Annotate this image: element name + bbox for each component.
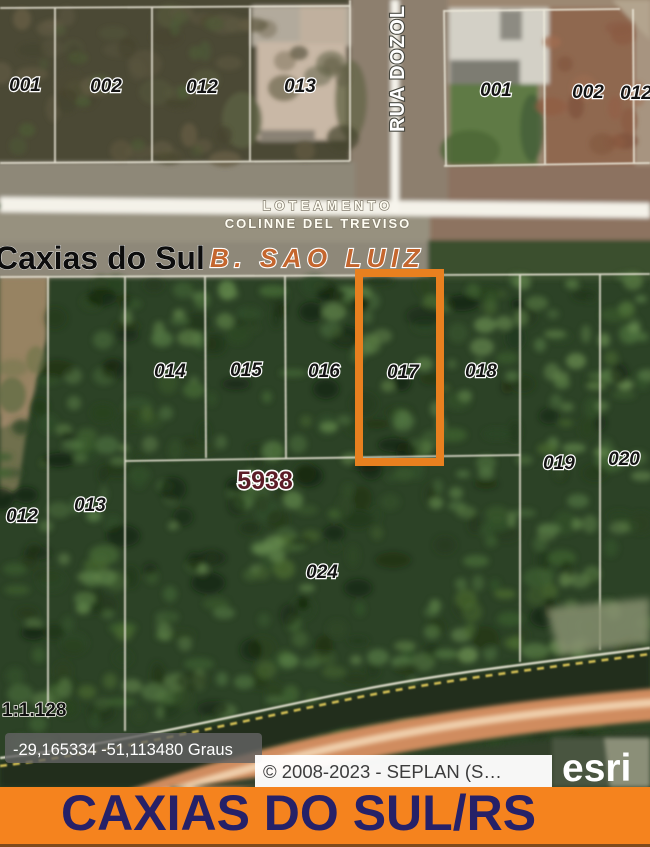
svg-text:esri: esri <box>562 747 631 787</box>
svg-text:013: 013 <box>74 495 106 516</box>
svg-text:012: 012 <box>6 506 38 527</box>
svg-text:013: 013 <box>284 76 316 97</box>
svg-text:5938: 5938 <box>237 467 293 495</box>
svg-text:001: 001 <box>9 75 41 96</box>
svg-text:020: 020 <box>608 449 640 470</box>
svg-text:LOTEAMENTO: LOTEAMENTO <box>263 198 394 213</box>
svg-text:002: 002 <box>572 82 604 103</box>
svg-text:016: 016 <box>308 361 340 382</box>
svg-text:015: 015 <box>230 360 262 381</box>
svg-text:Caxias do Sul: Caxias do Sul <box>0 240 205 276</box>
svg-text:012: 012 <box>620 83 650 104</box>
svg-text:RUA DOZOL: RUA DOZOL <box>387 5 409 132</box>
svg-text:001: 001 <box>480 80 512 101</box>
svg-text:1:1.128: 1:1.128 <box>2 700 66 721</box>
svg-text:024: 024 <box>306 562 338 583</box>
svg-text:© 2008-2023 - SEPLAN (S…: © 2008-2023 - SEPLAN (S… <box>263 761 502 782</box>
svg-text:017: 017 <box>387 362 420 383</box>
svg-text:002: 002 <box>90 76 122 97</box>
svg-text:014: 014 <box>154 361 186 382</box>
svg-text:018: 018 <box>465 361 497 382</box>
svg-text:B. SAO LUIZ: B. SAO LUIZ <box>210 243 425 273</box>
svg-text:-29,165334 -51,113480 Graus: -29,165334 -51,113480 Graus <box>13 741 233 759</box>
svg-text:012: 012 <box>186 77 218 98</box>
svg-text:019: 019 <box>543 453 575 474</box>
svg-text:COLINNE DEL TREVISO: COLINNE DEL TREVISO <box>225 216 412 231</box>
